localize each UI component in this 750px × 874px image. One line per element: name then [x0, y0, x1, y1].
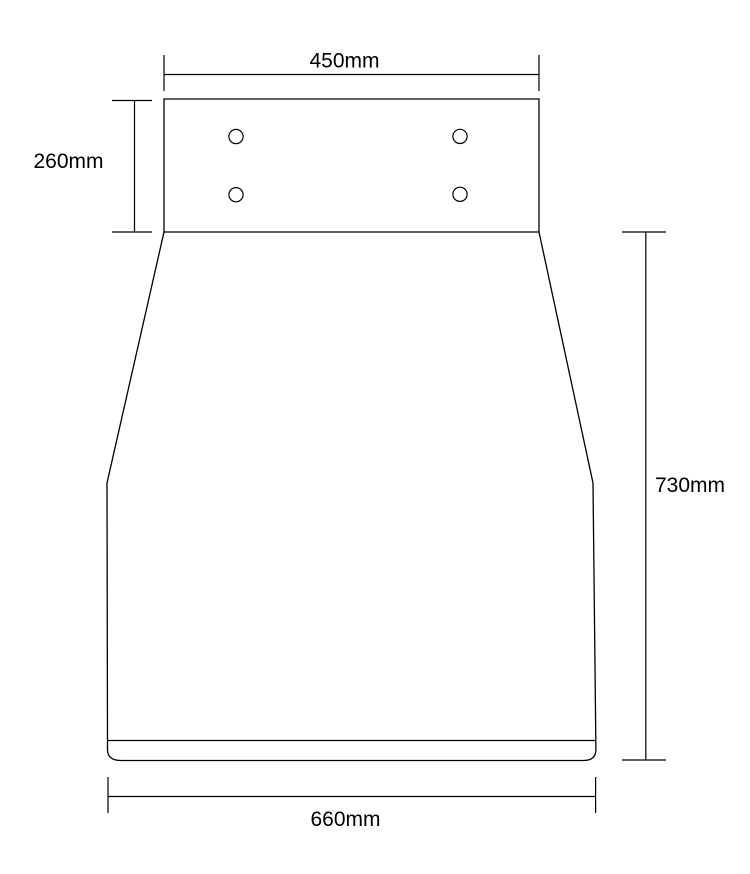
svg-text:660mm: 660mm — [310, 808, 380, 831]
svg-text:450mm: 450mm — [309, 49, 379, 72]
svg-text:260mm: 260mm — [33, 150, 103, 173]
svg-text:730mm: 730mm — [655, 474, 725, 497]
